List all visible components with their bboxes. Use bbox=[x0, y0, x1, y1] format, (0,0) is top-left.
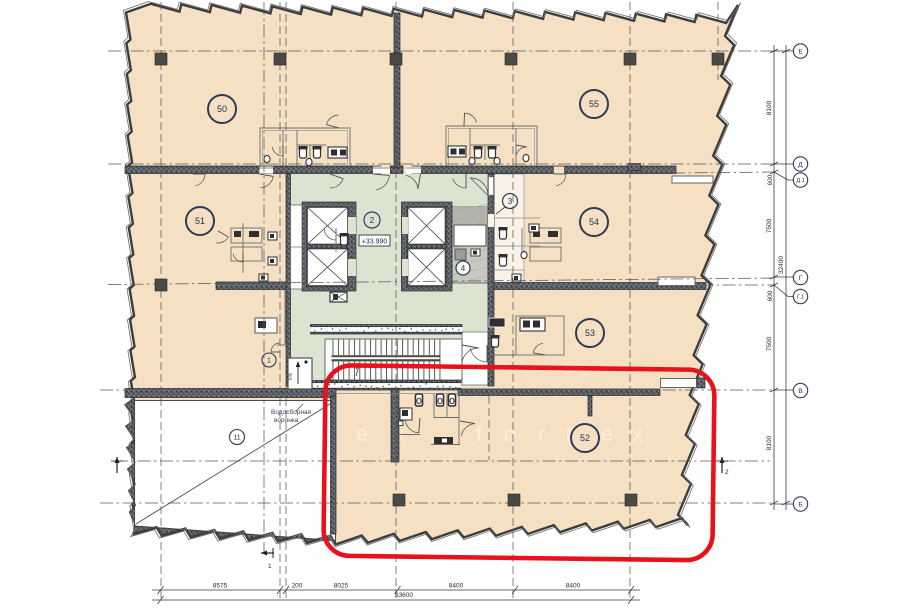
svg-text:600: 600 bbox=[767, 290, 774, 301]
svg-text:8025: 8025 bbox=[334, 583, 349, 590]
svg-text:7500: 7500 bbox=[766, 336, 773, 351]
svg-text:Б: Б bbox=[798, 501, 802, 508]
svg-text:Г.1: Г.1 bbox=[797, 295, 804, 301]
svg-text:Г: Г bbox=[799, 275, 803, 282]
svg-text:8100: 8100 bbox=[766, 100, 773, 115]
svg-text:o: o bbox=[261, 423, 273, 446]
svg-text:4: 4 bbox=[461, 264, 466, 273]
svg-text:x: x bbox=[632, 423, 643, 446]
svg-text:В: В bbox=[798, 388, 802, 395]
svg-text:33600: 33600 bbox=[395, 592, 413, 599]
svg-text:51: 51 bbox=[195, 216, 205, 226]
svg-text:2: 2 bbox=[725, 469, 729, 476]
svg-text:53: 53 bbox=[585, 328, 595, 338]
svg-text:1: 1 bbox=[268, 563, 272, 570]
svg-text:Е: Е bbox=[798, 48, 803, 55]
svg-text:воронка: воронка bbox=[274, 417, 299, 424]
svg-text:8400: 8400 bbox=[566, 583, 581, 590]
svg-text:200: 200 bbox=[292, 583, 303, 590]
svg-text:50: 50 bbox=[217, 104, 227, 114]
svg-text:8400: 8400 bbox=[449, 583, 464, 590]
svg-text:54: 54 bbox=[589, 217, 599, 227]
svg-text:52: 52 bbox=[580, 433, 590, 443]
svg-text:7500: 7500 bbox=[766, 218, 773, 233]
svg-text:Д.1: Д.1 bbox=[796, 178, 804, 184]
svg-text:e: e bbox=[601, 423, 613, 446]
svg-text:r: r bbox=[295, 423, 302, 446]
svg-text:Водосборная: Водосборная bbox=[271, 408, 312, 416]
svg-text:600: 600 bbox=[767, 174, 774, 185]
svg-text:f: f bbox=[476, 423, 482, 446]
svg-text:+33.990: +33.990 bbox=[362, 239, 388, 246]
svg-text:32400: 32400 bbox=[778, 256, 785, 274]
svg-text:Д: Д bbox=[798, 161, 803, 168]
svg-text:11: 11 bbox=[233, 435, 240, 442]
svg-text:8100: 8100 bbox=[766, 435, 773, 450]
svg-text:o: o bbox=[504, 423, 516, 446]
svg-text:3: 3 bbox=[508, 197, 513, 206]
svg-text:8575: 8575 bbox=[213, 583, 228, 590]
svg-text:e: e bbox=[356, 423, 368, 446]
svg-text:2: 2 bbox=[370, 216, 375, 225]
svg-text:r: r bbox=[538, 423, 545, 446]
svg-text:55: 55 bbox=[589, 99, 599, 109]
svg-text:1: 1 bbox=[267, 358, 271, 365]
svg-text:6%: 6% bbox=[288, 372, 294, 380]
